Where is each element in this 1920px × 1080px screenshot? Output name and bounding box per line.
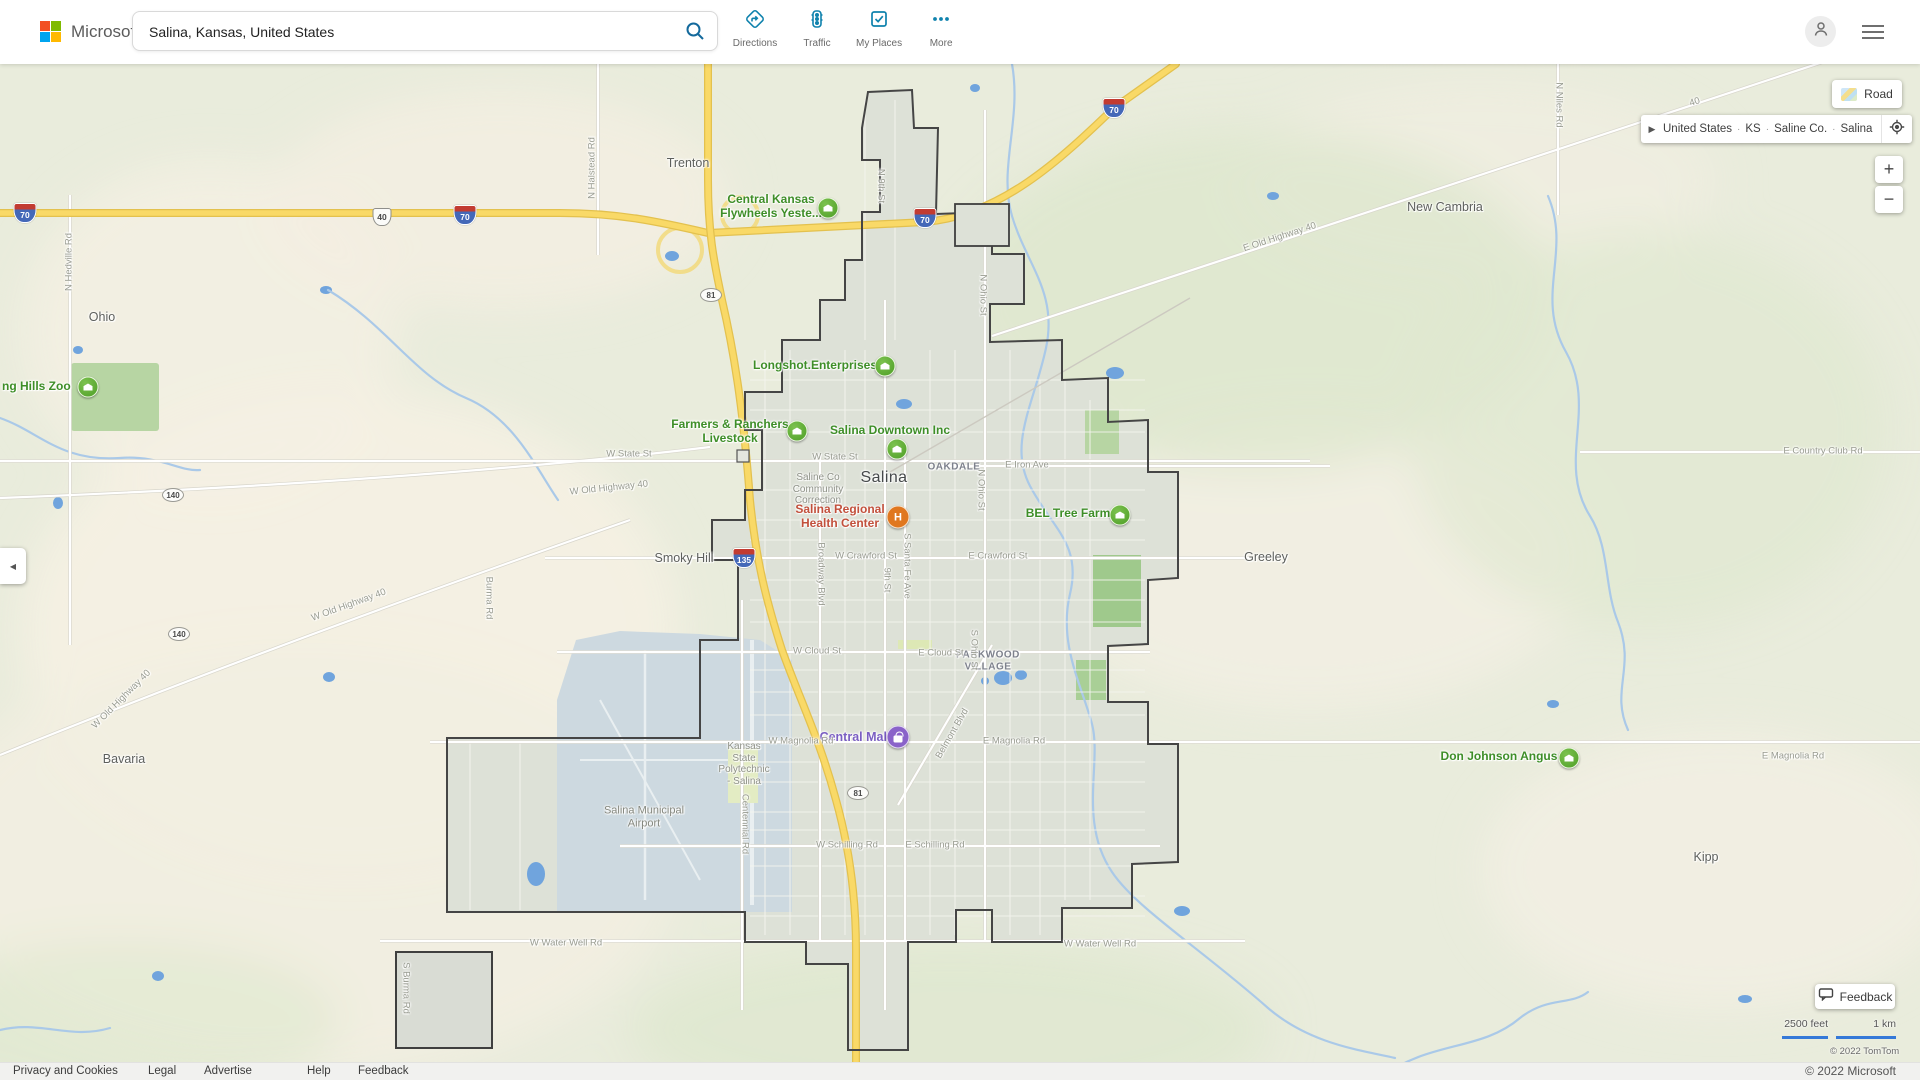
toolbar-label: Directions (733, 38, 777, 49)
zoom-in-button[interactable]: + (1875, 156, 1903, 183)
toolbar-label: My Places (856, 38, 902, 49)
map-data-copyright: © 2022 TomTom (1830, 1046, 1899, 1057)
zoo-poi-marker[interactable] (78, 377, 99, 398)
hamburger-menu-icon[interactable] (1862, 21, 1884, 43)
central-mall-marker[interactable] (887, 726, 910, 749)
toolbar-my-places[interactable]: My Places (856, 8, 902, 49)
footer: Privacy and Cookies Legal Advertise Help… (0, 1062, 1920, 1080)
header: Microsoft Bing (0, 0, 1920, 64)
road-style-icon (1841, 88, 1857, 101)
breadcrumb-separator: · (1766, 124, 1769, 135)
footer-link-privacy[interactable]: Privacy and Cookies (13, 1065, 118, 1077)
search-box[interactable] (132, 11, 718, 51)
salina-downtown-poi-marker[interactable] (887, 439, 908, 460)
map-style-button[interactable]: Road (1832, 80, 1902, 108)
flywheels-poi-marker[interactable] (818, 198, 839, 219)
hospital-marker[interactable]: H (887, 506, 910, 529)
toolbar-label: Traffic (803, 38, 830, 49)
toolbar-label: More (930, 38, 953, 49)
longshot-poi-marker[interactable] (875, 356, 896, 377)
locate-icon (1889, 119, 1905, 140)
map-canvas[interactable] (0, 0, 1920, 1080)
breadcrumb: ▶ United States · KS · Saline Co. · Sali… (1641, 115, 1912, 143)
scale-metric-label: 1 km (1846, 1018, 1896, 1030)
search-button[interactable] (681, 18, 709, 46)
my-places-icon (868, 8, 890, 35)
locate-me-button[interactable] (1881, 115, 1912, 143)
bing-maps-app: TrentonOhioNew CambriaSmoky HillGreeleyB… (0, 0, 1920, 1080)
chevron-right-icon[interactable]: ▶ (1641, 124, 1663, 135)
breadcrumb-separator: · (1737, 124, 1740, 135)
speech-bubble-icon (1818, 987, 1834, 1006)
toolbar-traffic[interactable]: Traffic (794, 8, 840, 49)
feedback-label: Feedback (1840, 990, 1893, 1004)
map-toolbar: Directions Traffic (732, 8, 964, 49)
collapse-arrow-icon: ◀ (10, 562, 16, 571)
scale-imperial-bar (1782, 1036, 1828, 1039)
breadcrumb-city[interactable]: Salina (1840, 123, 1872, 135)
scale-metric-bar (1836, 1036, 1896, 1039)
breadcrumb-state[interactable]: KS (1745, 123, 1760, 135)
breadcrumb-separator: · (1832, 124, 1835, 135)
more-icon (930, 8, 952, 35)
search-icon (684, 30, 706, 45)
map-feedback-button[interactable]: Feedback (1815, 984, 1895, 1009)
scale-imperial-label: 2500 feet (1766, 1018, 1828, 1030)
footer-link-advertise[interactable]: Advertise (204, 1065, 252, 1077)
map-style-label: Road (1864, 87, 1893, 101)
toolbar-more[interactable]: More (918, 8, 964, 49)
sidebar-collapse-tab[interactable]: ◀ (0, 548, 26, 584)
breadcrumb-county[interactable]: Saline Co. (1774, 123, 1827, 135)
don-johnson-poi-marker[interactable] (1559, 748, 1580, 769)
microsoft-logo-icon (40, 21, 61, 42)
directions-icon (744, 8, 766, 35)
farmers-ranchers-poi-marker[interactable] (787, 421, 808, 442)
footer-link-legal[interactable]: Legal (148, 1065, 176, 1077)
account-avatar[interactable] (1805, 16, 1836, 47)
footer-link-help[interactable]: Help (307, 1065, 331, 1077)
zoom-out-button[interactable]: − (1875, 186, 1903, 213)
toolbar-directions[interactable]: Directions (732, 8, 778, 49)
microsoft-copyright: © 2022 Microsoft (1805, 1064, 1896, 1078)
search-input[interactable] (147, 12, 671, 52)
header-right (1805, 16, 1884, 47)
breadcrumb-country[interactable]: United States (1663, 123, 1732, 135)
footer-link-feedback[interactable]: Feedback (358, 1065, 409, 1077)
bel-tree-farm-poi-marker[interactable] (1110, 505, 1131, 526)
person-icon (1811, 19, 1831, 44)
traffic-icon (806, 8, 828, 35)
